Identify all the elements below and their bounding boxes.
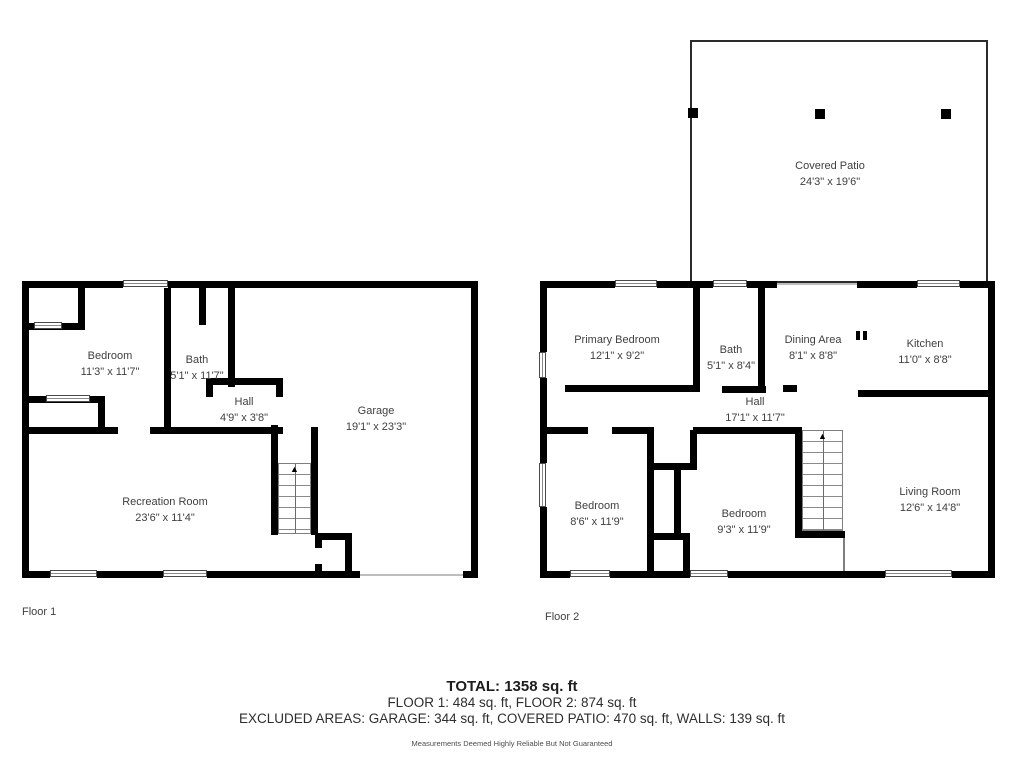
summary-floors: FLOOR 1: 484 sq. ft, FLOOR 2: 874 sq. ft: [0, 695, 1024, 711]
room-name: Garage: [346, 403, 406, 419]
room-label-covered-patio: Covered Patio 24'3" x 19'6": [795, 158, 865, 190]
wall: [693, 427, 798, 434]
floor2-label: Floor 2: [545, 611, 579, 623]
wall: [565, 385, 700, 392]
wall: [271, 425, 278, 535]
wall: [22, 571, 50, 578]
wall: [168, 281, 478, 288]
room-label-living-room: Living Room 12'6" x 14'8": [899, 484, 960, 516]
stair-direction-line: [823, 431, 824, 530]
wall: [647, 430, 654, 571]
room-label-bath: Bath 5'1" x 8'4": [707, 342, 755, 374]
room-label-primary-bedroom: Primary Bedroom 12'1" x 9'2": [574, 332, 660, 364]
room-name: Living Room: [899, 484, 960, 500]
room-name: Bath: [707, 342, 755, 358]
wall: [150, 427, 283, 434]
stair-direction-line: [295, 464, 296, 533]
room-name: Dining Area: [785, 332, 842, 348]
wall-tick: [863, 331, 867, 340]
wall: [988, 281, 995, 578]
wall-tick: [856, 331, 860, 340]
room-dims: 9'3" x 11'9": [717, 522, 770, 538]
room-label-garage: Garage 19'1" x 23'3": [346, 403, 406, 435]
wall: [783, 385, 797, 392]
wall: [722, 386, 766, 393]
patio-door-opening: [777, 283, 857, 285]
wall: [547, 427, 588, 434]
patio-post: [688, 108, 698, 118]
room-name: Bedroom: [717, 506, 770, 522]
room-dims: 5'1" x 8'4": [707, 358, 755, 374]
window: [123, 280, 168, 287]
window: [615, 280, 657, 287]
room-name: Hall: [220, 394, 268, 410]
room-label-bedroom-right: Bedroom 9'3" x 11'9": [717, 506, 770, 538]
window: [539, 352, 546, 378]
wall: [952, 571, 995, 578]
wall: [22, 281, 123, 288]
room-dims: 12'1" x 9'2": [574, 348, 660, 364]
wall: [858, 390, 988, 397]
room-name: Bedroom: [81, 348, 140, 364]
room-dims: 12'6" x 14'8": [899, 500, 960, 516]
room-name: Primary Bedroom: [574, 332, 660, 348]
wall: [311, 427, 318, 535]
room-dims: 4'9" x 3'8": [220, 410, 268, 426]
wall: [22, 281, 29, 578]
room-name: Covered Patio: [795, 158, 865, 174]
patio-post: [815, 109, 825, 119]
wall: [228, 288, 235, 387]
wall: [29, 427, 118, 434]
room-label-bedroom-left: Bedroom 8'6" x 11'9": [570, 498, 623, 530]
room-name: Kitchen: [898, 336, 951, 352]
wall: [795, 531, 845, 538]
stairs-up-arrow-icon: ▲: [818, 432, 827, 441]
summary-excluded: EXCLUDED AREAS: GARAGE: 344 sq. ft, COVE…: [0, 711, 1024, 727]
room-name: Bath: [170, 352, 223, 368]
wall: [674, 470, 681, 533]
room-dims: 19'1" x 23'3": [346, 419, 406, 435]
wall-edge: [843, 538, 845, 571]
room-label-hall: Hall 4'9" x 3'8": [220, 394, 268, 426]
wall: [693, 288, 700, 392]
wall: [276, 385, 283, 397]
window: [885, 570, 952, 577]
room-dims: 8'1" x 8'8": [785, 348, 842, 364]
floor1-label: Floor 1: [22, 606, 56, 618]
wall: [315, 540, 322, 548]
room-dims: 11'0" x 8'8": [898, 352, 951, 368]
room-label-kitchen: Kitchen 11'0" x 8'8": [898, 336, 951, 368]
wall: [540, 281, 547, 352]
wall: [654, 463, 697, 470]
room-name: Bedroom: [570, 498, 623, 514]
room-dims: 24'3" x 19'6": [795, 174, 865, 190]
window: [539, 463, 546, 507]
garage-door-opening: [360, 574, 463, 576]
room-label-dining-area: Dining Area 8'1" x 8'8": [785, 332, 842, 364]
window: [690, 570, 728, 577]
wall: [540, 571, 570, 578]
wall: [206, 385, 213, 397]
wall: [207, 571, 360, 578]
wall: [657, 281, 713, 288]
wall: [345, 533, 352, 578]
wall: [97, 571, 163, 578]
wall: [199, 288, 206, 325]
wall: [540, 281, 615, 288]
wall: [463, 571, 478, 578]
wall: [728, 571, 885, 578]
staircase: ▲: [802, 430, 843, 531]
wall: [315, 564, 322, 571]
wall: [540, 507, 547, 578]
wall: [857, 281, 917, 288]
wall: [540, 378, 547, 463]
window: [50, 570, 97, 577]
staircase: ▲: [278, 463, 311, 534]
room-name: Recreation Room: [122, 494, 208, 510]
room-dims: 5'1" x 11'7": [170, 368, 223, 384]
summary: TOTAL: 1358 sq. ft FLOOR 1: 484 sq. ft, …: [0, 678, 1024, 748]
wall: [795, 427, 802, 538]
summary-total: TOTAL: 1358 sq. ft: [0, 678, 1024, 695]
room-dims: 17'1" x 11'7": [725, 410, 785, 426]
stairs-up-arrow-icon: ▲: [290, 465, 299, 474]
summary-disclaimer: Measurements Deemed Highly Reliable But …: [0, 739, 1024, 748]
closet-door: [34, 322, 62, 329]
room-dims: 11'3" x 11'7": [81, 364, 140, 380]
room-label-hall: Hall 17'1" x 11'7": [725, 394, 785, 426]
floor-plan-page: ▲ Bedroom 11'3" x 11'7" Bath 5'1" x 11'7…: [0, 0, 1024, 768]
room-label-recreation-room: Recreation Room 23'6" x 11'4": [122, 494, 208, 526]
wall: [747, 281, 777, 288]
wall: [683, 533, 690, 578]
wall: [78, 288, 85, 330]
wall: [758, 288, 765, 387]
patio-post: [941, 109, 951, 119]
window: [917, 280, 960, 287]
room-label-bath: Bath 5'1" x 11'7": [170, 352, 223, 384]
room-name: Hall: [725, 394, 785, 410]
window: [163, 570, 207, 577]
closet-door: [46, 395, 90, 402]
room-label-bedroom: Bedroom 11'3" x 11'7": [81, 348, 140, 380]
window: [570, 570, 610, 577]
wall: [471, 281, 478, 578]
room-dims: 23'6" x 11'4": [122, 510, 208, 526]
wall: [690, 430, 697, 466]
room-dims: 8'6" x 11'9": [570, 514, 623, 530]
wall: [610, 571, 690, 578]
window: [713, 280, 747, 287]
